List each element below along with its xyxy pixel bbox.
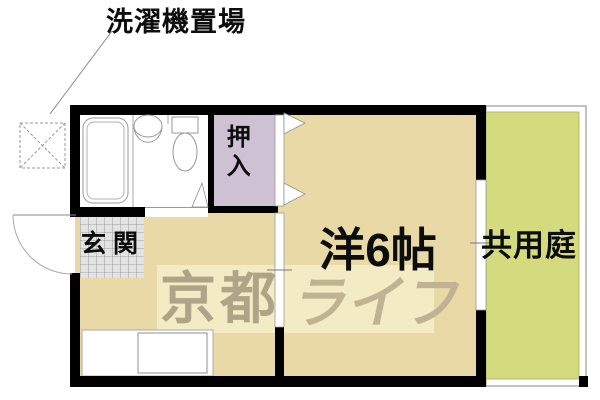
watermark-text-kyoto: 京都: [160, 267, 280, 330]
entrance-door-arc: [13, 215, 72, 274]
kitchen-sink: [138, 333, 207, 373]
floorplan-drawing: 京都 ライフ: [0, 0, 600, 400]
wall-bathroom-closet: [208, 115, 214, 213]
closet-label: 押入: [223, 124, 248, 182]
washer-box-diagonal-2: [20, 123, 65, 168]
washer-area-label: 洗濯機置場: [106, 8, 246, 36]
washbasin: [134, 115, 162, 137]
wall-right-upper: [476, 105, 486, 180]
watermark-text-life: ライフ: [287, 272, 468, 334]
wall-left-upper: [70, 105, 80, 215]
washer-leader-line: [50, 31, 112, 114]
shared-garden-label: 共用庭: [481, 230, 600, 263]
entrance-door: [13, 215, 76, 274]
toilet-bowl: [173, 133, 197, 171]
wall-bathroom-bottom: [70, 207, 145, 217]
washer-spot: [20, 123, 65, 168]
toilet-tank: [172, 117, 198, 133]
wall-right-lower: [476, 310, 486, 387]
kitchen-counter: [82, 330, 213, 376]
wall-closet-bottom: [208, 206, 278, 213]
wall-left-lower: [70, 273, 80, 387]
wall-top: [70, 105, 486, 115]
wall-room-divider: [275, 327, 284, 382]
garden-corner-post: [579, 376, 588, 387]
entrance-label: 玄関: [81, 231, 145, 257]
floorplan-canvas: 京都 ライフ: [0, 0, 600, 400]
main-room-label: 洋6帖: [298, 226, 458, 274]
